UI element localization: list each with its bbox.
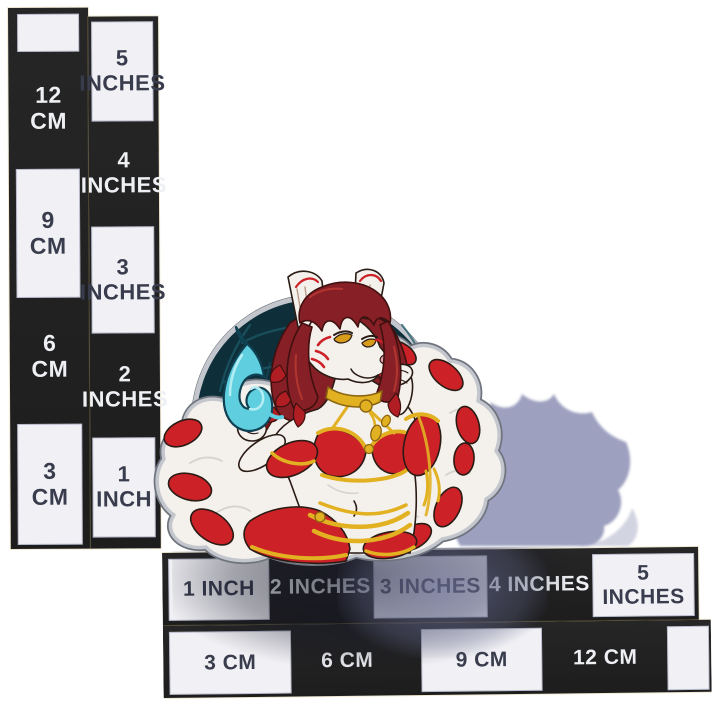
ruler-box-blank-right: [667, 626, 710, 690]
ruler-box-3in: 3 INCHES: [91, 226, 155, 333]
ruler-box-9cm: 9 CM: [16, 169, 81, 298]
ruler-label-5inches: 5 INCHES: [593, 561, 694, 609]
ruler-box-5in: 5 INCHES: [91, 21, 154, 121]
ruler-label-4in: 4 INCHES: [89, 147, 159, 199]
vertical-ruler: 12 CM 9 CM 6 CM 3 CM 5 INCHES 4 INCHES 3…: [8, 7, 163, 549]
product-photo-stage: 12 CM 9 CM 6 CM 3 CM 5 INCHES 4 INCHES 3…: [0, 0, 720, 711]
enamel-pin: [150, 263, 570, 575]
ruler-label-5in: 5 INCHES: [79, 47, 165, 97]
ruler-label-9cm-h: 9 CM: [456, 648, 508, 672]
ruler-label-1in: 1 INCH: [96, 463, 152, 513]
ruler-label-1inch: 1 INCH: [183, 577, 255, 601]
ruler-label-12cm: 12 CM: [8, 82, 88, 136]
ruler-label-6cm-h: 6 CM: [295, 629, 400, 691]
ruler-box-3cm: 3 CM: [17, 424, 83, 545]
ruler-label-6cm: 6 CM: [10, 330, 90, 384]
ruler-box-3cm: 3 CM: [169, 631, 292, 695]
ruler-box-5inches: 5 INCHES: [592, 553, 695, 617]
ruler-label-3cm: 3 CM: [31, 458, 68, 510]
ruler-box-blank-top: [17, 14, 79, 52]
ruler-box-1in: 1 INCH: [92, 437, 156, 537]
ruler-box-9cm-h: 9 CM: [421, 628, 543, 692]
ruler-label-3inches: 3 INCHES: [380, 575, 481, 600]
ruler-label-12cm-h: 12 CM: [553, 626, 658, 688]
ruler-label-3cm-h: 3 CM: [204, 651, 256, 675]
ruler-label-9cm: 9 CM: [30, 207, 67, 259]
